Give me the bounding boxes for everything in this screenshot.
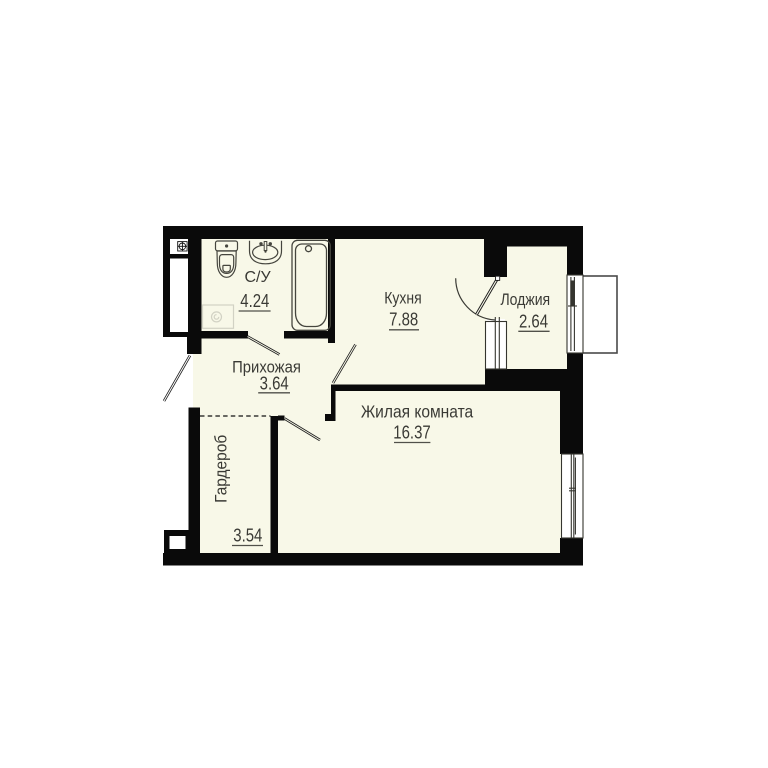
svg-text:Гардероб: Гардероб xyxy=(213,435,230,503)
svg-text:3.64: 3.64 xyxy=(260,373,289,394)
svg-text:С/У: С/У xyxy=(245,269,272,286)
svg-text:3.54: 3.54 xyxy=(233,525,262,546)
svg-text:4.24: 4.24 xyxy=(240,291,269,312)
svg-text:2.64: 2.64 xyxy=(519,311,548,332)
svg-text:Кухня: Кухня xyxy=(384,289,421,307)
svg-text:Жилая комната: Жилая комната xyxy=(361,402,474,422)
svg-text:Лоджия: Лоджия xyxy=(500,291,550,309)
svg-text:16.37: 16.37 xyxy=(393,422,430,443)
svg-text:7.88: 7.88 xyxy=(389,309,418,330)
